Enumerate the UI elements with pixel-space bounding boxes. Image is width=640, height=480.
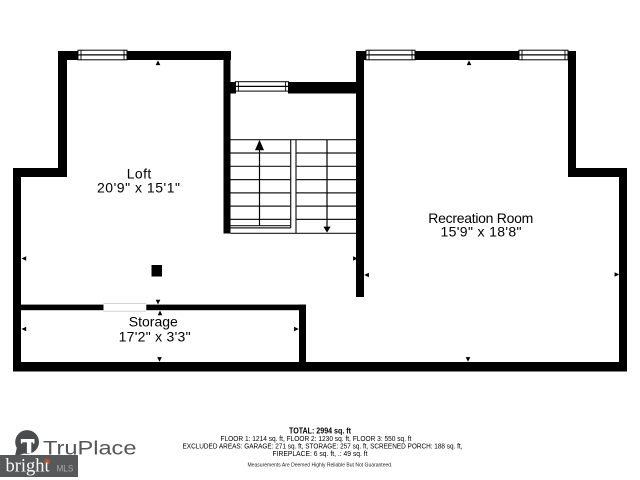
svg-text:MLS: MLS	[57, 464, 74, 474]
svg-text:17'2" x 3'3": 17'2" x 3'3"	[119, 328, 191, 344]
svg-text:bright: bright	[6, 457, 51, 477]
svg-text:FLOOR 1: 1214 sq. ft, FLOOR 2:: FLOOR 1: 1214 sq. ft, FLOOR 2: 1230 sq. …	[221, 436, 412, 443]
svg-text:Storage: Storage	[129, 313, 178, 329]
svg-text:15'9" x 18'8": 15'9" x 18'8"	[441, 224, 522, 240]
svg-text:FIREPLACE: 6 sq. ft, .: 49 sq.: FIREPLACE: 6 sq. ft, .: 49 sq. ft	[273, 451, 368, 458]
svg-text:20'9" x 15'1": 20'9" x 15'1"	[97, 179, 180, 195]
svg-text:TOTAL: 2994 sq. ft: TOTAL: 2994 sq. ft	[289, 426, 351, 435]
svg-text:EXCLUDED AREAS: GARAGE: 271 sq: EXCLUDED AREAS: GARAGE: 271 sq. ft, STOR…	[183, 444, 463, 451]
svg-text:Measurements Are Deemed Highly: Measurements Are Deemed Highly Reliable …	[248, 462, 393, 468]
